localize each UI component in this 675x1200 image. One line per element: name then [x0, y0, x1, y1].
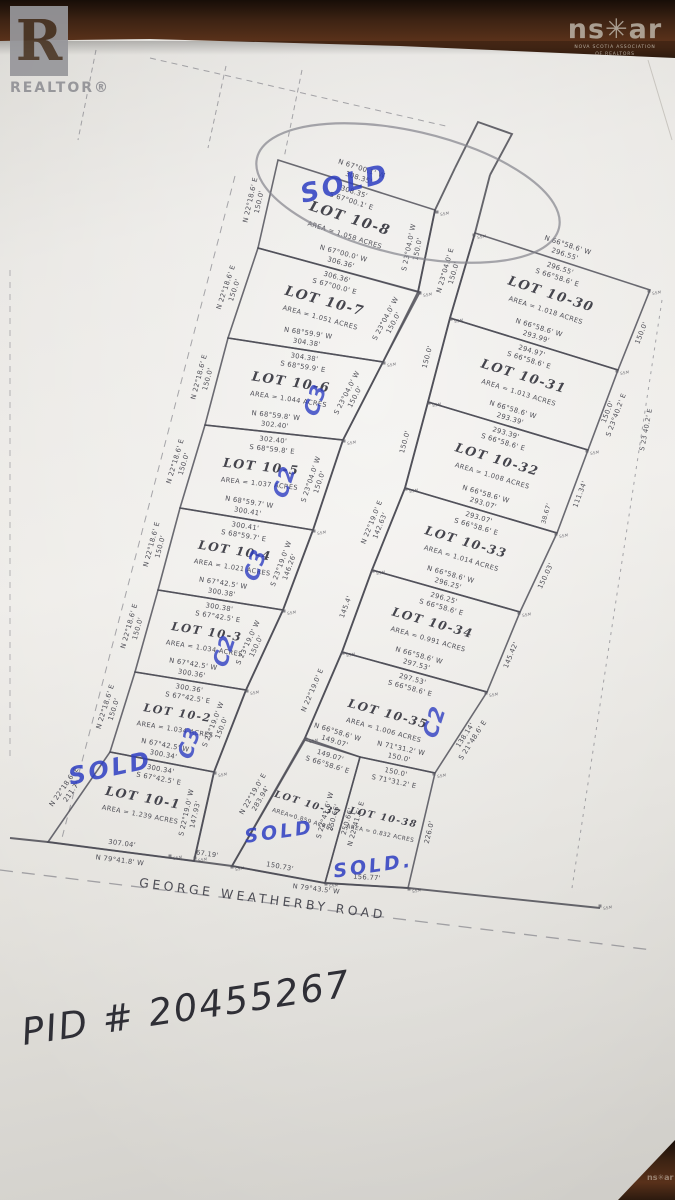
survey-marker-icon [405, 488, 408, 491]
survey-marker-icon [313, 530, 316, 533]
survey-marker-icon [518, 612, 521, 615]
survey-marker-icon [428, 402, 431, 405]
nsar-subtext-line2: OF REALTORS [556, 52, 674, 59]
survey-marker-icon [325, 883, 328, 886]
survey-marker-icon [599, 905, 602, 908]
realtor-wordmark: REALTOR® [10, 80, 120, 96]
survey-marker-icon [648, 290, 651, 293]
survey-marker-icon [372, 570, 375, 573]
survey-marker-icon [194, 857, 197, 860]
nsar-corner-watermark: ns✳ar [647, 1173, 674, 1182]
realtor-r-glyph: R [16, 13, 63, 69]
survey-marker-icon [214, 772, 217, 775]
survey-marker-icon [450, 318, 453, 321]
survey-marker-icon [383, 362, 386, 365]
nsar-logo: ns✳ar NOVA SCOTIA ASSOCIATION OF REALTOR… [556, 14, 674, 59]
nsar-subtext-line1: NOVA SCOTIA ASSOCIATION [556, 45, 674, 52]
survey-marker-icon [305, 738, 308, 741]
survey-marker-icon [169, 855, 172, 858]
survey-marker-icon [342, 652, 345, 655]
survey-marker-icon [436, 211, 439, 214]
survey-marker-icon [246, 690, 249, 693]
survey-marker-icon [433, 773, 436, 776]
survey-marker-icon [419, 292, 422, 295]
realtor-logo: R REALTOR® [10, 6, 120, 96]
survey-marker-icon [616, 370, 619, 373]
survey-marker-icon [343, 440, 346, 443]
survey-marker-icon [485, 692, 488, 695]
realtor-r-icon: R [10, 6, 68, 76]
nsar-wordmark: ns✳ar [556, 14, 674, 45]
survey-marker-icon [473, 234, 476, 237]
survey-marker-icon [586, 450, 589, 453]
survey-marker-icon [555, 533, 558, 536]
survey-marker-icon [283, 610, 286, 613]
nsar-subtext: NOVA SCOTIA ASSOCIATION OF REALTORS [556, 45, 674, 59]
survey-marker-icon [231, 866, 234, 869]
survey-marker-icon [408, 888, 411, 891]
